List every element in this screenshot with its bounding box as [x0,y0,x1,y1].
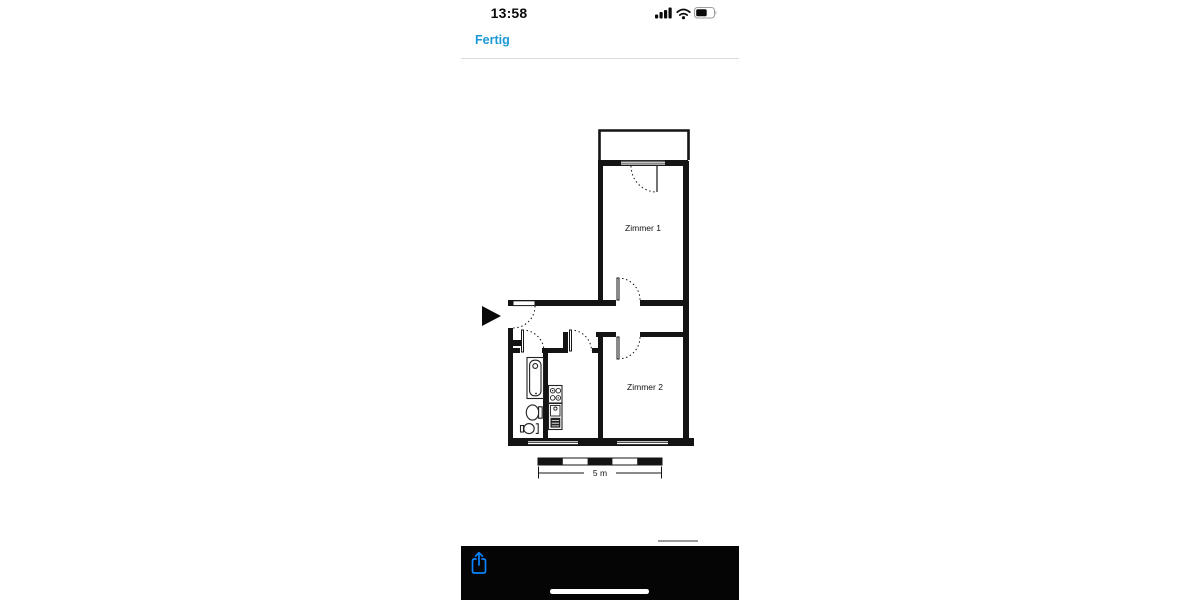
door-bathroom [522,330,545,352]
walls [508,160,694,446]
kitchen-sink-unit [549,404,563,430]
door-zimmer2 [617,337,640,359]
battery-icon [695,8,717,19]
bottom-toolbar [461,546,739,600]
window-bath-kitchen-bottom [528,441,578,445]
cellular-signal-icon [655,8,672,19]
window-zimmer1-top [621,161,665,165]
window-zimmer2-bottom [617,441,668,445]
bathtub [527,358,544,399]
status-time: 13:58 [461,5,557,21]
entrance-arrow-icon [482,306,501,326]
room-2-label: Zimmer 2 [627,382,663,392]
scale-bar: 5 m [538,458,662,479]
balcony-outline [600,131,689,161]
room-1-label: Zimmer 1 [625,223,661,233]
wifi-icon [677,10,690,20]
nav-divider [461,58,739,59]
washbasin [521,424,539,434]
door-balcony [631,166,657,192]
door-entrance [513,301,535,328]
done-button[interactable]: Fertig [475,33,510,47]
bathroom-fixtures [521,358,544,434]
floor-plan-document[interactable]: Zimmer 1 Zimmer 2 5 m [455,120,745,490]
door-kitchen [570,330,592,351]
status-icons [653,6,719,20]
kitchen-fixtures [549,386,563,430]
share-button[interactable] [468,550,490,576]
share-icon [473,553,486,573]
door-zimmer1 [617,278,640,300]
page-edge-line [658,540,698,542]
home-indicator[interactable] [550,589,649,594]
doors [513,166,657,359]
stove [549,386,563,404]
scale-label: 5 m [593,468,607,478]
toilet [526,405,542,420]
